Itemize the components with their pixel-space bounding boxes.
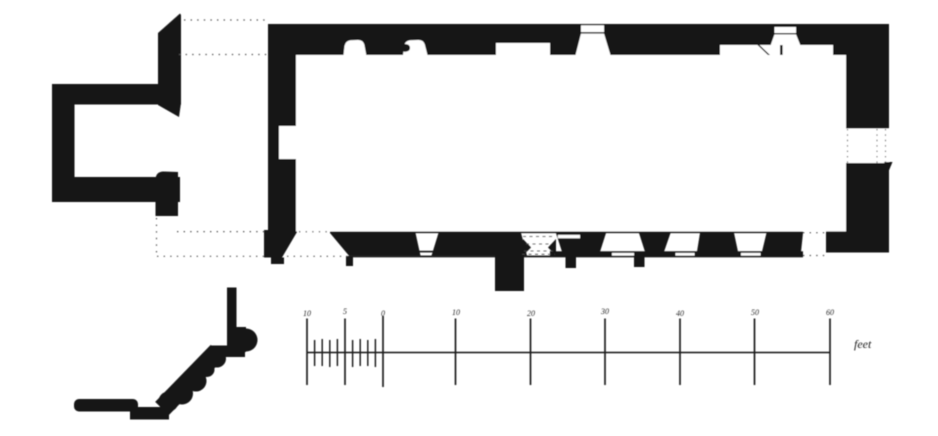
svg-text:50: 50: [751, 308, 759, 317]
svg-text:40: 40: [676, 309, 684, 318]
svg-text:feet: feet: [854, 337, 872, 351]
svg-text:0: 0: [381, 309, 385, 318]
svg-text:5: 5: [343, 307, 347, 316]
svg-text:60: 60: [826, 308, 834, 317]
svg-text:30: 30: [600, 307, 609, 316]
svg-text:20: 20: [527, 309, 535, 318]
svg-text:10: 10: [452, 308, 460, 317]
svg-text:10: 10: [303, 309, 311, 318]
